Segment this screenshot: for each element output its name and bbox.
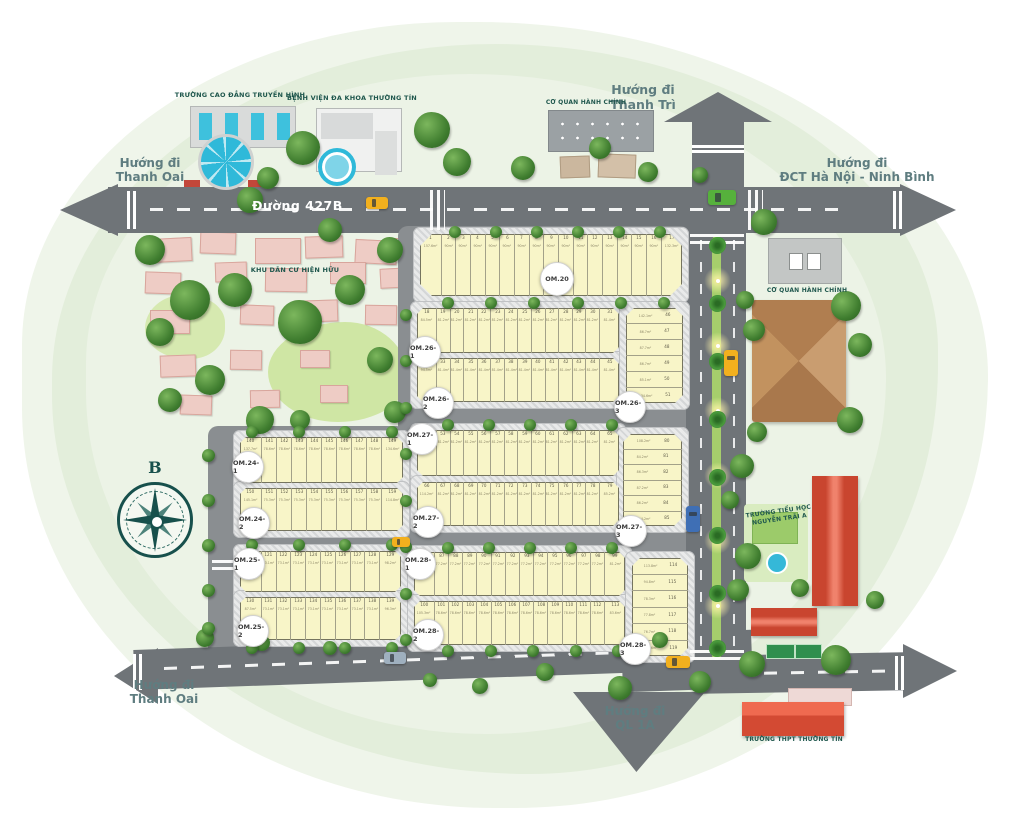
plot-cell: 6281.2m² xyxy=(559,430,573,476)
plot-area: 81.2m² xyxy=(546,492,558,496)
plot-number: 138 xyxy=(368,599,376,604)
tree xyxy=(323,641,337,655)
plot-area: 94.8m² xyxy=(644,580,656,584)
plot-area: 81.2m² xyxy=(533,318,545,322)
plot-area: 73.1m² xyxy=(292,561,304,565)
plot-cell: 2281.2m² xyxy=(478,308,492,353)
street-tree xyxy=(400,634,412,646)
plot-cell: 390m² xyxy=(456,234,471,296)
street-tree xyxy=(654,226,666,238)
hospital-label: BỆNH VIỆN ĐA KHOA THƯỜNG TÍN xyxy=(262,94,442,102)
plot-area: 132.3m² xyxy=(665,244,679,248)
plot-number: 24 xyxy=(509,310,514,315)
plot-number: 125 xyxy=(324,553,332,558)
plot-number: 56 xyxy=(481,432,486,437)
plot-cell: 1690m² xyxy=(647,234,662,296)
plot-cell: 3181.4m² xyxy=(600,308,619,353)
tree xyxy=(866,591,884,609)
plot-area: 78.6m² xyxy=(492,611,504,615)
plot-number: 78 xyxy=(590,484,595,489)
plot-area: 94.5m² xyxy=(421,368,433,372)
plot-number: 18 xyxy=(424,310,429,315)
plot-number: 73 xyxy=(522,484,527,489)
plot-area: 81.2m² xyxy=(437,440,449,444)
masterplan-map: Hướng đi Thanh Oai Hướng đi Thanh Trì Hư… xyxy=(0,0,1024,839)
plot-number: 65 xyxy=(607,432,612,437)
car-windshield xyxy=(372,199,376,206)
tree xyxy=(821,645,851,675)
plot-area: 75.3m² xyxy=(293,498,305,502)
plot-area: 142.1m² xyxy=(639,314,653,318)
taxi-street xyxy=(392,537,410,547)
plot-cell: 15775.3m² xyxy=(352,488,367,531)
truck-top xyxy=(708,190,736,205)
street-tree xyxy=(400,309,412,321)
plot-area: 77.8m² xyxy=(644,613,656,617)
plot-number: 69 xyxy=(468,484,473,489)
tree xyxy=(170,280,210,320)
plot-number: 114 xyxy=(669,564,677,569)
existing-house xyxy=(320,385,348,403)
existing-house xyxy=(180,394,213,415)
plot-cell: 9981.2m² xyxy=(605,552,625,596)
plot-cell: 8977.2m² xyxy=(463,552,477,596)
compass-north-letter: B xyxy=(140,458,170,479)
plot-cell: 7681.2m² xyxy=(559,482,573,526)
plot-area: 98.2m² xyxy=(385,561,397,565)
plot-cell: 1490m² xyxy=(618,234,633,296)
plot-cell: 9577.2m² xyxy=(548,552,562,596)
admin-top-label: CƠ QUAN HÀNH CHÍNH xyxy=(540,99,632,107)
plot-cell: 290m² xyxy=(442,234,457,296)
plot-number: 91 xyxy=(496,554,501,559)
plot-number: 85 xyxy=(664,517,669,522)
plot-area: 78.6m² xyxy=(563,611,575,615)
tree xyxy=(423,673,437,687)
plot-cell: 7781.2m² xyxy=(573,482,587,526)
plot-number: 34 xyxy=(454,360,459,365)
plot-area: 81.2m² xyxy=(437,318,449,322)
plot-number: 115 xyxy=(668,580,676,585)
tree xyxy=(536,663,554,681)
plot-cell: 15475.3m² xyxy=(307,488,322,531)
plot-cell: 790m² xyxy=(515,234,530,296)
plot-area: 90m² xyxy=(503,244,512,248)
plot-area: 75.3m² xyxy=(353,498,365,502)
high-school-label: TRƯỜNG THPT THƯỜNG TÍN xyxy=(742,736,846,744)
plot-area: 75.3m² xyxy=(263,498,275,502)
street-tree xyxy=(531,226,543,238)
college-round-pool xyxy=(198,134,254,190)
car-windshield xyxy=(397,539,401,545)
street-light xyxy=(704,267,731,294)
plot-area: 114.2m² xyxy=(420,492,434,496)
plot-number: 105 xyxy=(494,603,502,608)
plot-area: 81.2m² xyxy=(519,318,531,322)
tree xyxy=(848,333,872,357)
plot-cell: 10478.6m² xyxy=(477,601,491,645)
plot-area: 90m² xyxy=(620,244,629,248)
plot-area: 81.2m² xyxy=(451,440,463,444)
plot-cell: 7881.2m² xyxy=(586,482,600,526)
street-tree xyxy=(483,419,495,431)
plot-cell: 5881.2m² xyxy=(505,430,519,476)
street-tree xyxy=(606,419,618,431)
plot-number: 44 xyxy=(590,360,595,365)
plot-area: 81.2m² xyxy=(604,440,616,444)
block-badge-om28-1: OM.28-1 xyxy=(404,548,436,580)
plot-number: 54 xyxy=(454,432,459,437)
plot-area: 73.1m² xyxy=(307,607,319,611)
plot-block-om28-row1: 86123.8m²8777.2m²8877.2m²8977.2m²9077.2m… xyxy=(414,552,625,596)
plot-number: 102 xyxy=(452,603,460,608)
existing-house xyxy=(300,350,330,368)
plot-block-om27-row1: 52108.7m²5381.2m²5481.2m²5581.2m²5681.2m… xyxy=(417,430,619,476)
plot-cell: 9477.2m² xyxy=(534,552,548,596)
tree xyxy=(837,407,863,433)
plot-cell: 6081.2m² xyxy=(532,430,546,476)
plot-cell: 10778.6m² xyxy=(520,601,534,645)
plot-number: 87 xyxy=(439,554,444,559)
street-tree xyxy=(572,297,584,309)
plot-cell: 84.2m²81 xyxy=(623,450,682,466)
street-tree xyxy=(565,542,577,554)
tree xyxy=(202,584,215,597)
plot-area: 105.3m² xyxy=(417,611,431,615)
plot-cell: 12998.2m² xyxy=(380,551,401,592)
plot-block-om25-row1: 12085.6m²12173.1m²12273.1m²12373.1m²1247… xyxy=(240,551,401,592)
street-tree xyxy=(485,645,497,657)
plot-number: 75 xyxy=(549,484,554,489)
tree xyxy=(511,156,535,180)
plot-number: 81 xyxy=(663,455,668,460)
plot-number: 36 xyxy=(481,360,486,365)
plot-area: 77.2m² xyxy=(549,562,561,566)
plot-cell: 7281.2m² xyxy=(505,482,519,526)
plot-number: 66 xyxy=(424,484,429,489)
plot-cell: 2381.2m² xyxy=(491,308,505,353)
plot-cell: 10878.6m² xyxy=(534,601,548,645)
plot-number: 90 xyxy=(481,554,486,559)
plot-cell: 490m² xyxy=(471,234,486,296)
plot-area: 84.5m² xyxy=(421,318,433,322)
plot-cell: 4081.4m² xyxy=(532,358,546,402)
plot-number: 68 xyxy=(454,484,459,489)
plot-cell: 690m² xyxy=(500,234,515,296)
plot-cell: 4581.4m² xyxy=(600,358,619,402)
plot-cell: 12673.1m² xyxy=(336,551,351,592)
plot-number: 55 xyxy=(468,432,473,437)
plot-number: 103 xyxy=(466,603,474,608)
street-tree xyxy=(572,226,584,238)
block-badge-om28-2: OM.28-2 xyxy=(412,619,444,651)
plot-area: 78.6m² xyxy=(450,611,462,615)
tree xyxy=(286,131,320,165)
plot-number: 27 xyxy=(549,310,554,315)
plot-number: 92 xyxy=(510,554,515,559)
plot-number: 112 xyxy=(594,603,602,608)
plot-number: 152 xyxy=(280,490,288,495)
plot-cell: 6881.2m² xyxy=(451,482,465,526)
car-windshield xyxy=(390,654,394,661)
plot-cell: 1590m² xyxy=(632,234,647,296)
plot-area: 78.3m² xyxy=(644,597,656,601)
plot-number: 50 xyxy=(665,377,670,382)
plot-area: 134.6m² xyxy=(386,447,400,451)
plot-number: 158 xyxy=(370,490,378,495)
plot-area: 73.1m² xyxy=(366,607,378,611)
plot-area: 81.2m² xyxy=(573,440,585,444)
plot-number: 116 xyxy=(668,597,676,602)
plot-number: 153 xyxy=(295,490,303,495)
plot-area: 73.1m² xyxy=(322,561,334,565)
plot-number: 100 xyxy=(420,603,428,608)
plot-cell: 8877.2m² xyxy=(449,552,463,596)
plot-cell: 10378.6m² xyxy=(463,601,477,645)
pool-lane xyxy=(251,113,264,140)
plot-area: 81.4m² xyxy=(519,368,531,372)
street-tree xyxy=(386,426,398,438)
plot-number: 4 xyxy=(476,236,479,241)
plot-area: 81.2m² xyxy=(505,318,517,322)
plot-cell: 77.8m²117 xyxy=(632,608,688,625)
plot-number: 109 xyxy=(551,603,559,608)
existing-residential-label: KHU DÂN CƯ HIỆN HỮU xyxy=(238,266,352,274)
plot-number: 31 xyxy=(607,310,612,315)
tree xyxy=(472,678,488,694)
plot-number: 25 xyxy=(522,310,527,315)
plot-area: 81.2m² xyxy=(505,492,517,496)
plot-number: 93 xyxy=(524,554,529,559)
sports-building-roof xyxy=(751,608,817,636)
plot-cell: 3081.2m² xyxy=(586,308,600,353)
plot-area: 157.6m² xyxy=(423,244,437,248)
plot-cell: 6381.2m² xyxy=(573,430,587,476)
plot-number: 28 xyxy=(563,310,568,315)
existing-house xyxy=(255,238,301,264)
plot-area: 78.6m² xyxy=(278,447,290,451)
plot-area: 78.6m² xyxy=(507,611,519,615)
car-windshield xyxy=(672,658,677,665)
block-badge-om28-3: OM.28-3 xyxy=(619,633,651,665)
plot-number: 79 xyxy=(607,484,612,489)
plot-cell: 9277.2m² xyxy=(506,552,520,596)
plot-area: 78.6m² xyxy=(263,447,275,451)
plot-number: 74 xyxy=(536,484,541,489)
plot-number: 88 xyxy=(453,554,458,559)
plot-area: 78.6m² xyxy=(478,611,490,615)
street-light-dot xyxy=(716,604,720,608)
block-badge-om25-2: OM.25-2 xyxy=(237,615,269,647)
plot-area: 90m² xyxy=(517,244,526,248)
pool-lane xyxy=(199,113,212,140)
plot-number: 145 xyxy=(325,439,333,444)
plot-area: 145.1m² xyxy=(244,498,258,502)
plot-cell: 5681.2m² xyxy=(478,430,492,476)
plot-number: 47 xyxy=(665,329,670,334)
boulevard-lane-line-left xyxy=(700,240,702,658)
plot-number: 139 xyxy=(387,599,395,604)
plot-number: 101 xyxy=(438,603,446,608)
plot-area: 77.2m² xyxy=(521,562,533,566)
plot-number: 10 xyxy=(563,236,568,241)
street-tree xyxy=(442,542,454,554)
plot-area: 81.2m² xyxy=(492,318,504,322)
plot-cell: 9877.2m² xyxy=(591,552,605,596)
plot-area: 90m² xyxy=(635,244,644,248)
plot-cell: 5781.2m² xyxy=(491,430,505,476)
compass-rose xyxy=(117,482,193,558)
plot-area: 78.6m² xyxy=(464,611,476,615)
plot-area: 81.2m² xyxy=(546,440,558,444)
car-boulevard-yellow xyxy=(724,350,738,376)
plot-cell: 5581.2m² xyxy=(464,430,478,476)
plot-number: 121 xyxy=(265,553,273,558)
plot-cell: 5381.2m² xyxy=(437,430,451,476)
plot-number: 94 xyxy=(538,554,543,559)
plot-cell: 3781.4m² xyxy=(491,358,505,402)
block-badge-om26-3: OM.26-3 xyxy=(614,391,646,423)
plot-number: 154 xyxy=(310,490,318,495)
plot-number: 60 xyxy=(536,432,541,437)
plot-area: 81.2m² xyxy=(573,318,585,322)
plot-number: 41 xyxy=(549,360,554,365)
door xyxy=(807,253,821,270)
plot-cell: 94.8m²115 xyxy=(632,575,688,592)
plot-cell: 12473.1m² xyxy=(306,551,321,592)
plot-area: 73.1m² xyxy=(278,561,290,565)
plot-cell: 2581.2m² xyxy=(518,308,532,353)
plot-cell: 11278.6m² xyxy=(591,601,605,645)
plot-cell: 4281.4m² xyxy=(559,358,573,402)
plot-area: 78.6m² xyxy=(549,611,561,615)
plot-cell: 13673.1m² xyxy=(336,597,351,640)
plot-number: 95 xyxy=(552,554,557,559)
plot-area: 81.4m² xyxy=(437,368,449,372)
plot-area: 81.4m² xyxy=(478,368,490,372)
plot-area: 81.2m² xyxy=(546,318,558,322)
existing-house xyxy=(160,354,197,377)
tree xyxy=(318,218,342,242)
plot-area: 113.8m² xyxy=(643,564,657,568)
plot-cell: 113.8m²114 xyxy=(632,558,688,575)
admin-right-roof xyxy=(752,300,846,422)
plot-area: 86.7m² xyxy=(639,330,651,334)
block-badge-om24-1: OM.24-1 xyxy=(232,451,264,483)
plot-number: 141 xyxy=(265,439,273,444)
plot-area: 81.4m² xyxy=(505,368,517,372)
plot-area: 77.2m² xyxy=(592,562,604,566)
plot-number: 156 xyxy=(340,490,348,495)
car-bottom-silver xyxy=(384,652,406,664)
plot-number: 132 xyxy=(280,599,288,604)
arrow-east-bottom xyxy=(903,644,957,698)
plot-area: 81.2m² xyxy=(478,440,490,444)
plot-number: 83 xyxy=(663,486,668,491)
plot-cell: 86.2m²84 xyxy=(623,496,682,512)
plot-area: 77.2m² xyxy=(450,562,462,566)
tree xyxy=(218,273,252,307)
plot-area: 77.2m² xyxy=(464,562,476,566)
plot-area: 90m² xyxy=(561,244,570,248)
direction-label-bottom-left: Hướng đi Thanh Oai xyxy=(108,678,220,707)
plot-cell: 149134.6m² xyxy=(382,437,403,483)
tree xyxy=(721,491,739,509)
plot-area: 81.4m² xyxy=(587,368,599,372)
plot-number: 84 xyxy=(663,501,668,506)
primary-school-building xyxy=(812,476,858,606)
plot-cell: 14878.6m² xyxy=(367,437,382,483)
tree xyxy=(589,137,611,159)
plot-number: 99 xyxy=(613,554,618,559)
tree xyxy=(335,275,365,305)
plot-number: 38 xyxy=(509,360,514,365)
plot-area: 81.4m² xyxy=(573,368,585,372)
plot-area: 81.2m² xyxy=(478,318,490,322)
tree xyxy=(791,579,809,597)
plot-cell: 108.2m²80 xyxy=(623,434,682,450)
tree xyxy=(257,167,279,189)
tree xyxy=(739,651,765,677)
plot-area: 90m² xyxy=(576,244,585,248)
street-tree xyxy=(400,495,412,507)
plot-area: 75.3m² xyxy=(278,498,290,502)
existing-house xyxy=(250,390,280,409)
plot-area: 73.1m² xyxy=(278,607,290,611)
direction-label-bottom: Hướng đi QL 1A xyxy=(585,704,685,733)
plot-number: 134 xyxy=(309,599,317,604)
plot-number: 48 xyxy=(665,345,670,350)
plot-cell: 6581.2m² xyxy=(600,430,619,476)
street-tree xyxy=(293,642,305,654)
pool-lane xyxy=(277,113,290,140)
plot-cell: 7581.2m² xyxy=(546,482,560,526)
plot-cell: 2781.2m² xyxy=(546,308,560,353)
plot-number: 89 xyxy=(467,554,472,559)
plot-area: 86.3m² xyxy=(637,470,649,474)
plot-number: 97 xyxy=(581,554,586,559)
plot-number: 29 xyxy=(577,310,582,315)
tree xyxy=(689,671,711,693)
plot-number: 72 xyxy=(509,484,514,489)
plot-cell: 15375.3m² xyxy=(292,488,307,531)
plot-number: 22 xyxy=(481,310,486,315)
plot-area: 87.2m² xyxy=(637,486,649,490)
plot-cell: 13273.1m² xyxy=(277,597,292,640)
plot-area: 90m² xyxy=(459,244,468,248)
block-badge-om24-2: OM.24-2 xyxy=(238,507,270,539)
plot-area: 77.2m² xyxy=(578,562,590,566)
plot-area: 81.2m² xyxy=(465,492,477,496)
plot-number: 149 xyxy=(389,439,397,444)
tree xyxy=(195,365,225,395)
street-light-dot xyxy=(716,279,720,283)
plot-cell: 86.3m²82 xyxy=(623,465,682,481)
plot-number: 82 xyxy=(663,470,668,475)
plot-cell: 87.2m²83 xyxy=(623,481,682,497)
taxi-427b xyxy=(366,197,388,209)
hospital-round-pool xyxy=(318,148,356,186)
plot-number: 70 xyxy=(481,484,486,489)
taxi-bottom xyxy=(666,656,690,668)
plot-area: 85.2m² xyxy=(604,492,616,496)
plot-cell: 6481.2m² xyxy=(586,430,600,476)
plot-area: 90m² xyxy=(649,244,658,248)
tree xyxy=(727,579,749,601)
plot-cell: 85.1m²50 xyxy=(626,372,683,388)
plot-area: 81.2m² xyxy=(609,562,621,566)
street-tree xyxy=(570,645,582,657)
